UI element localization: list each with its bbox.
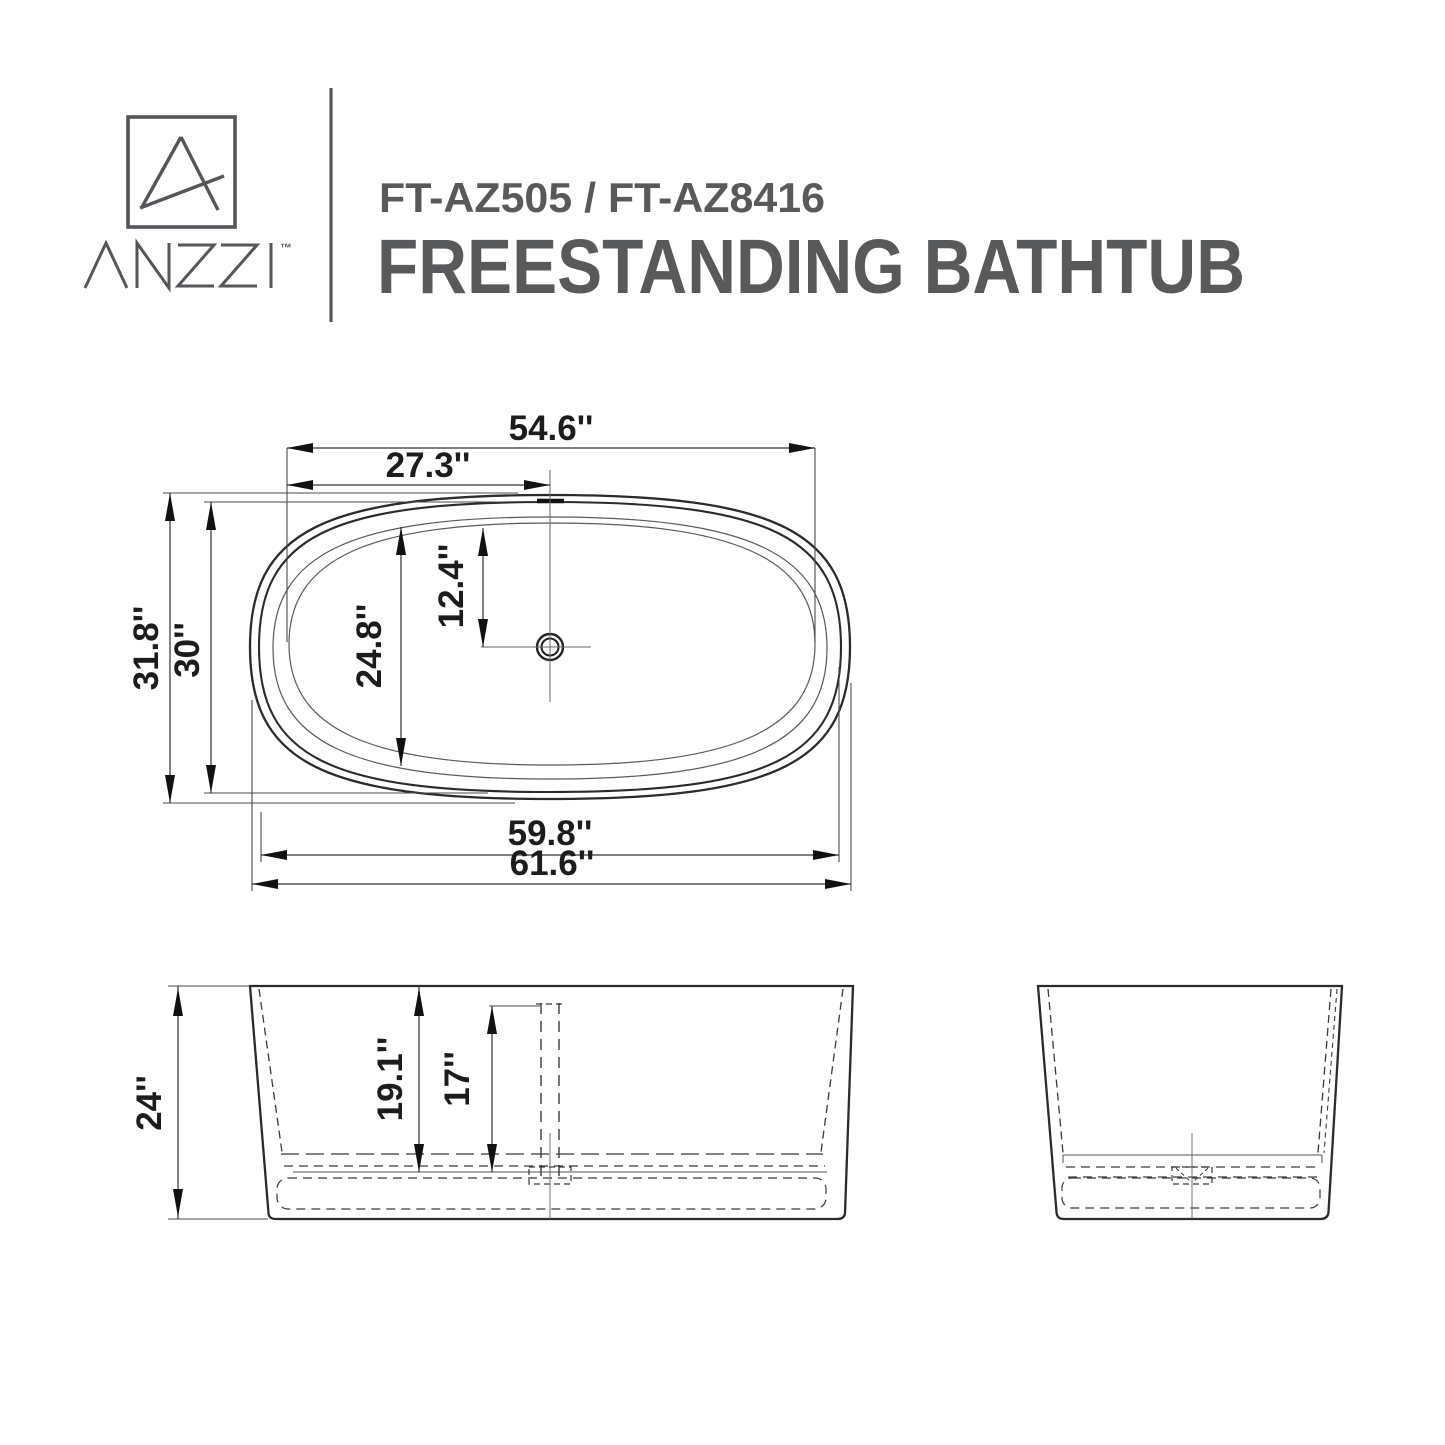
- side-hidden-lines: [1048, 989, 1337, 1208]
- top-view: 54.6'' 27.3'' 31.8'' 30'' 24.8'' 12.4'' …: [127, 409, 851, 891]
- drain-top-view: [481, 470, 591, 702]
- front-view: 24'' 19.1'' 17'': [130, 986, 853, 1219]
- dim-rim-width-label: 30'': [168, 622, 207, 678]
- dim-water-depth-label: 17'': [438, 1051, 477, 1107]
- front-hidden-lines: [259, 989, 843, 1209]
- side-outline: [1038, 986, 1342, 1219]
- dim-drain-offset-width-label: 12.4'': [432, 544, 471, 629]
- model-number: FT-AZ505 / FT-AZ8416: [379, 174, 825, 221]
- side-view: [1038, 986, 1342, 1219]
- page-title: FREESTANDING BATHTUB: [377, 224, 1245, 310]
- front-outline: [250, 986, 853, 1219]
- dim-overall-width-label: 31.8'': [127, 606, 166, 691]
- dim-inner-depth-label: 19.1'': [371, 1037, 410, 1122]
- spec-sheet-page: ™ FT-AZ505 / FT-AZ8416 FREESTANDING BATH…: [0, 0, 1445, 1445]
- extension-lines-front: [168, 986, 540, 1219]
- brand-logo: ™: [85, 117, 292, 288]
- anzzi-logo-icon: [128, 117, 235, 227]
- dim-basin-width-label: 24.8'': [350, 604, 389, 689]
- dim-drain-offset-length-label: 27.3'': [386, 446, 471, 485]
- anzzi-wordmark-icon: [85, 243, 271, 288]
- dim-basin-length-label: 54.6'': [509, 409, 594, 448]
- technical-drawing: ™ FT-AZ505 / FT-AZ8416 FREESTANDING BATH…: [0, 0, 1445, 1445]
- header-titles: FT-AZ505 / FT-AZ8416 FREESTANDING BATHTU…: [377, 174, 1245, 310]
- anzzi-logo-a-mark-icon: [140, 137, 224, 210]
- dim-overall-height-label: 24'': [130, 1075, 169, 1131]
- trademark-symbol: ™: [280, 241, 292, 255]
- dim-overall-length-label: 61.6'': [510, 844, 595, 883]
